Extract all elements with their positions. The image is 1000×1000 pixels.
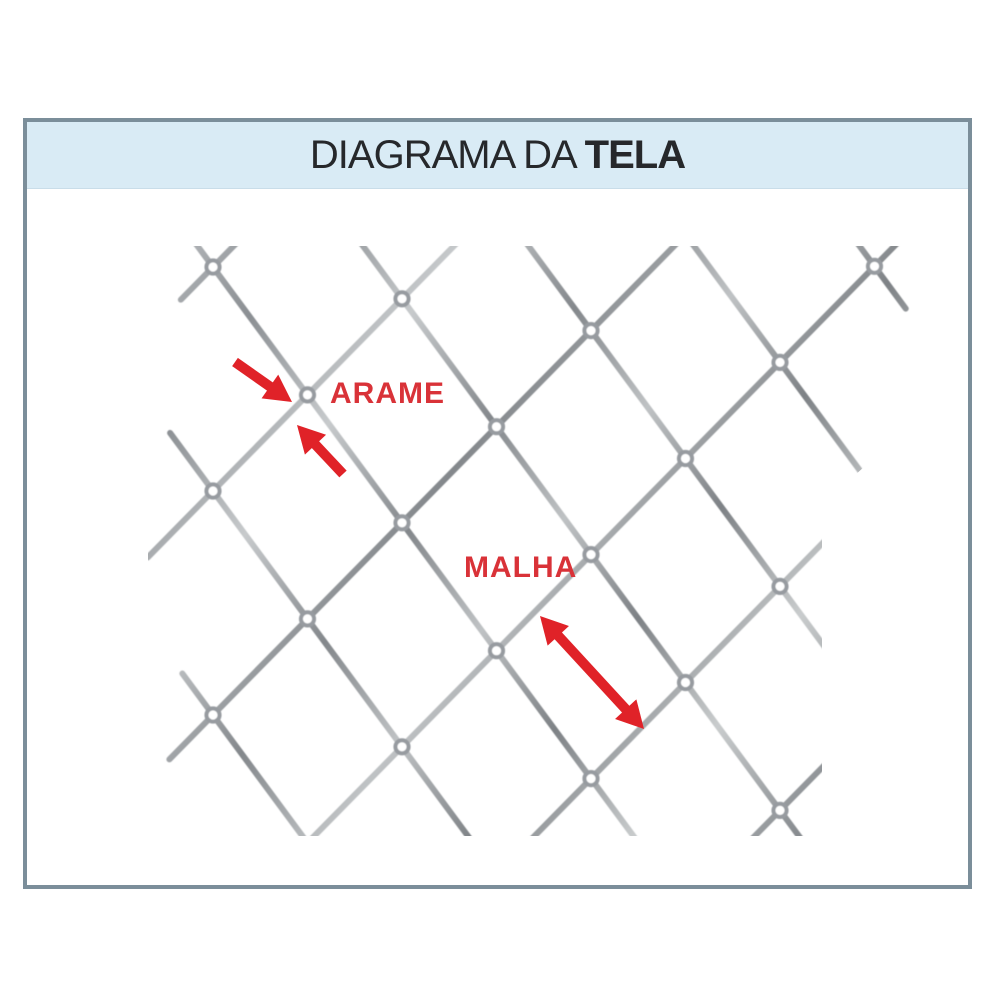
label-malha: MALHA [464,553,577,583]
title-regular-part: DIAGRAMA DA [310,133,585,177]
page-title: DIAGRAMA DA TELA [310,133,685,178]
panel-header: DIAGRAMA DA TELA [27,122,968,189]
label-arame: ARAME [330,379,445,409]
diagram-panel: DIAGRAMA DA TELA [23,118,972,889]
title-bold-part: TELA [585,133,685,177]
